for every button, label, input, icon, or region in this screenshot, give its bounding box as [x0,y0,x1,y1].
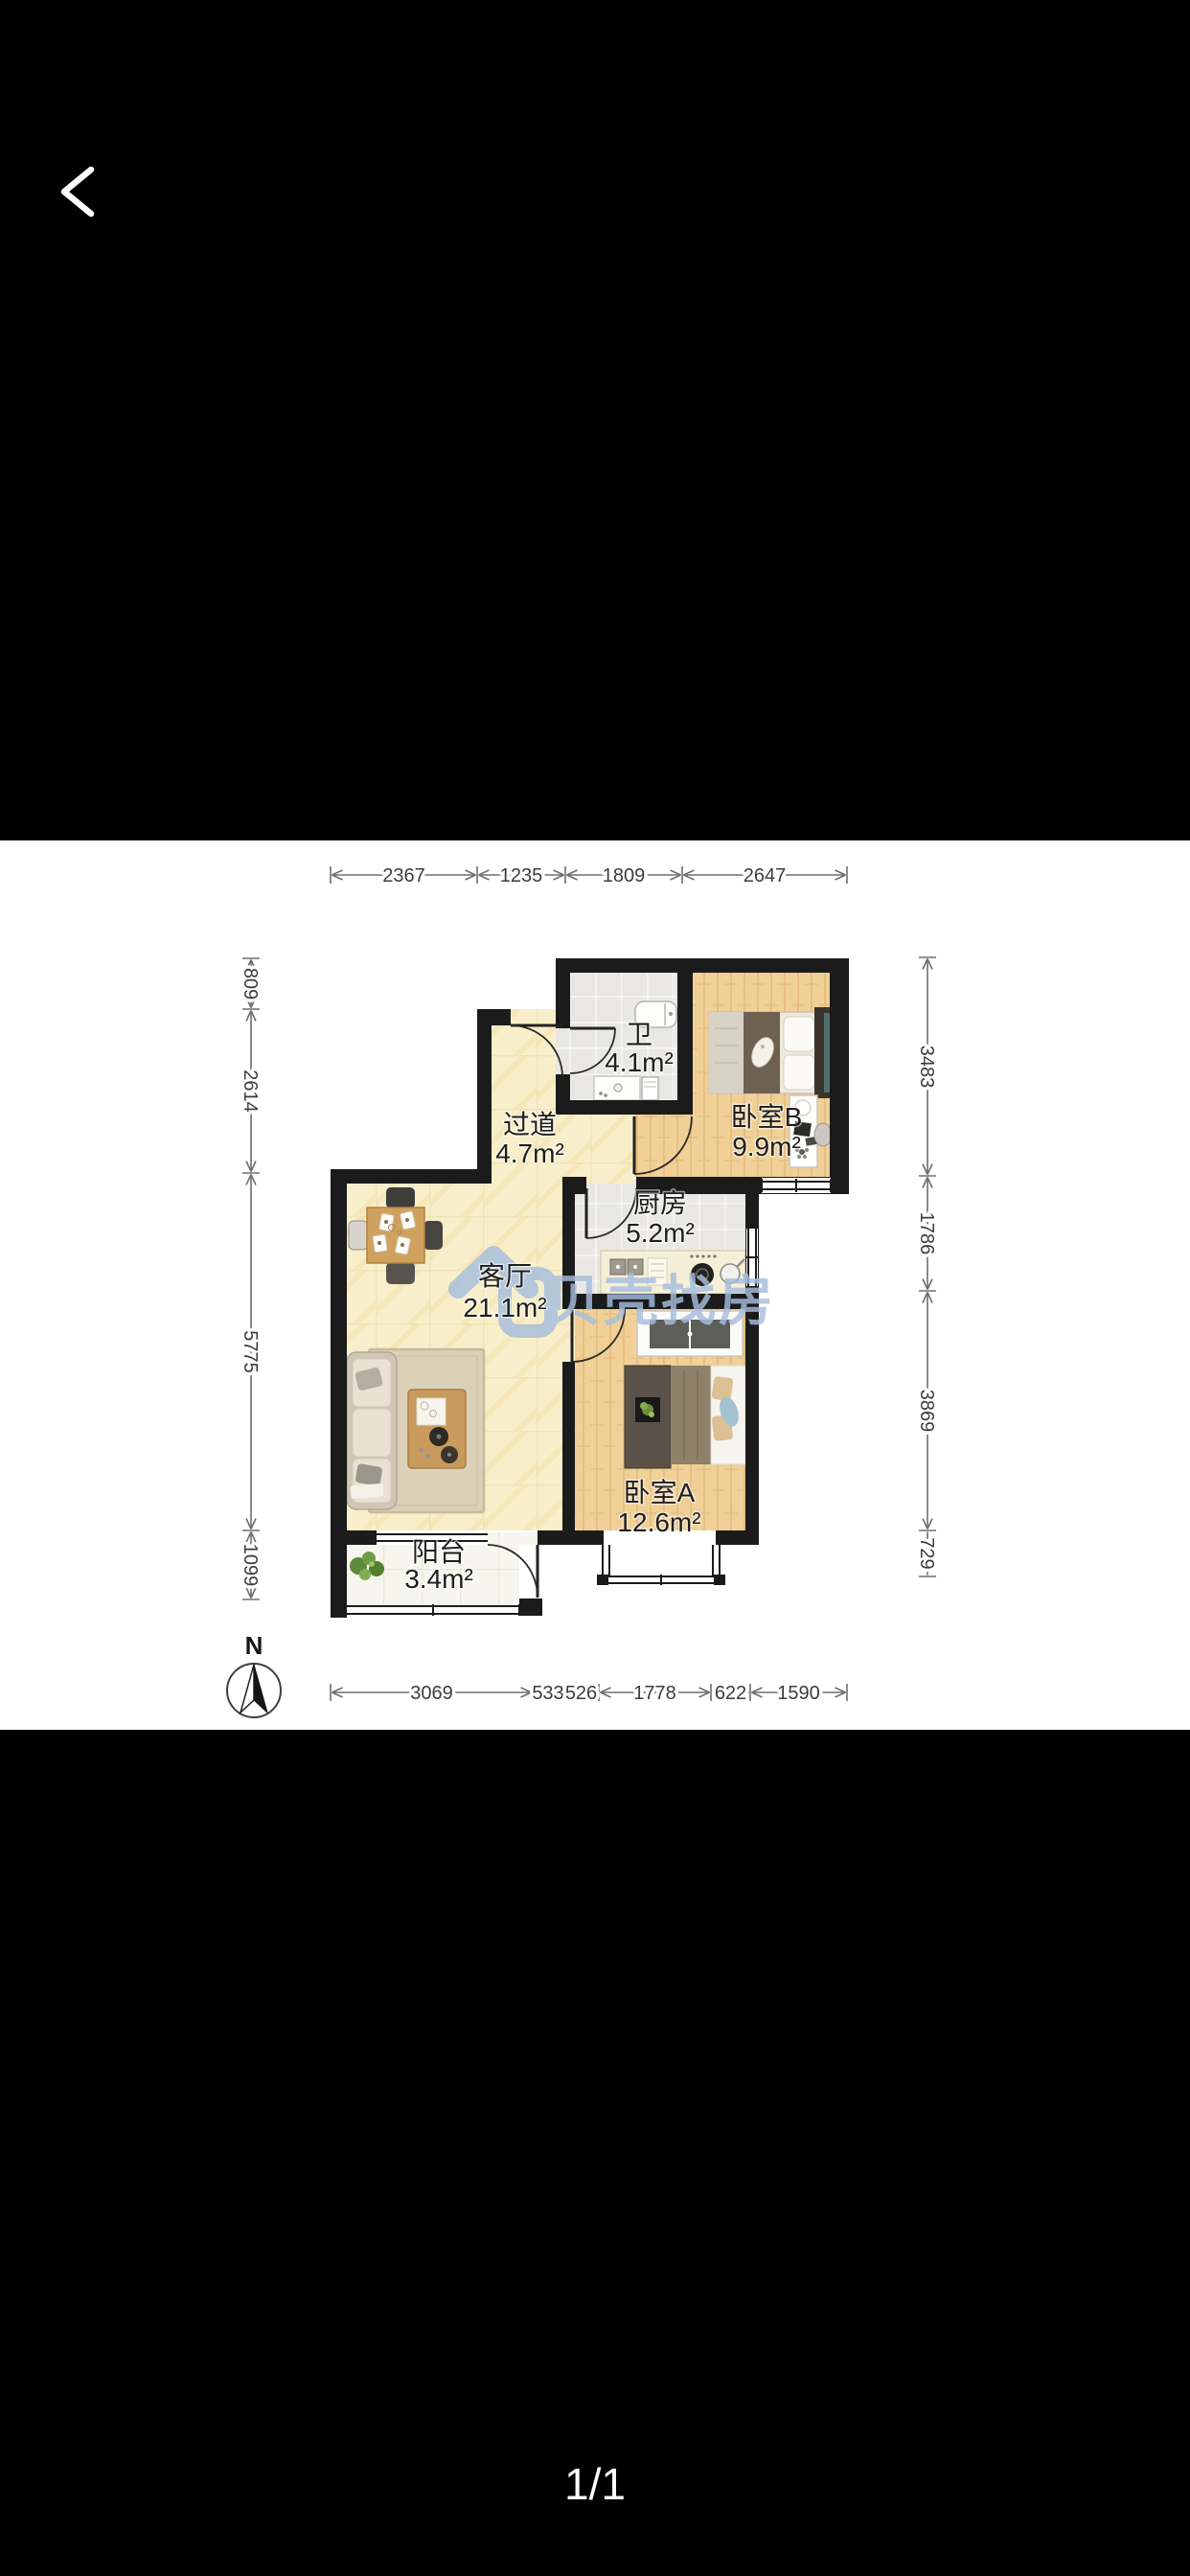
room-label-living: 客厅 [478,1261,532,1291]
sink-vanity-icon [594,1076,640,1100]
washing-machine-icon [642,1077,658,1100]
compass-icon: N [227,1631,281,1717]
room-label-bathroom: 卫 [626,1020,652,1049]
dimension-label: 1235 [500,865,543,886]
room-label-bedroom-a: 卧室A [624,1478,696,1507]
dimension-label: 5775 [240,1330,261,1373]
coffee-table-icon [408,1390,466,1468]
floorplan-image[interactable]: 贝壳找房 卫 4.1m² 卧室B 9.9m² 过道 4.7m² 厨房 5.2m²… [0,840,1190,1730]
dimension-label: 1786 [916,1212,937,1255]
back-button[interactable] [38,151,115,232]
dresser-icon [625,1366,671,1468]
room-label-bedroom-b: 卧室B [731,1102,803,1132]
room-label-kitchen: 厨房 [633,1188,687,1218]
dimension-label: 729 [916,1537,937,1569]
bed-b-icon [709,1007,830,1098]
sofa-icon [347,1352,397,1509]
room-area-bedroom-b: 9.9m² [732,1132,801,1161]
dimension-label: 622 [715,1683,746,1704]
dimension-label: 1590 [777,1683,820,1704]
bedroom-a-bay-window-icon [601,1545,721,1585]
dimension-label: 1809 [603,865,646,886]
room-area-bedroom-a: 12.6m² [617,1507,700,1537]
dimension-label: 3483 [916,1046,937,1089]
room-area-balcony: 3.4m² [404,1564,473,1594]
room-area-bathroom: 4.1m² [605,1047,674,1077]
room-area-living: 21.1m² [463,1293,546,1322]
room-area-hallway: 4.7m² [495,1138,564,1168]
dimension-label: 533 [532,1683,563,1704]
room-area-kitchen: 5.2m² [626,1218,695,1248]
compass-north-label: N [245,1631,263,1660]
dimension-label: 2647 [744,865,787,886]
dimension-label: 3069 [410,1683,453,1704]
dimension-label: 526 [565,1683,597,1704]
room-label-balcony: 阳台 [412,1537,466,1567]
dimension-label: 1778 [633,1683,676,1704]
dimension-label: 2367 [382,865,425,886]
bedroom-b-window-icon [762,1178,831,1193]
watermark-text: 贝壳找房 [546,1271,776,1332]
chevron-left-icon [55,165,99,218]
bed-a-icon [671,1366,745,1464]
room-label-hallway: 过道 [503,1110,557,1139]
dimension-label: 2614 [240,1069,261,1113]
dimension-label: 3869 [916,1390,937,1433]
dimension-label: 809 [240,968,261,1000]
floorplan-drawing: 贝壳找房 卫 4.1m² 卧室B 9.9m² 过道 4.7m² 厨房 5.2m²… [0,840,1190,1730]
dimension-label: 1099 [240,1544,261,1587]
page-indicator: 1/1 [0,2455,1190,2513]
